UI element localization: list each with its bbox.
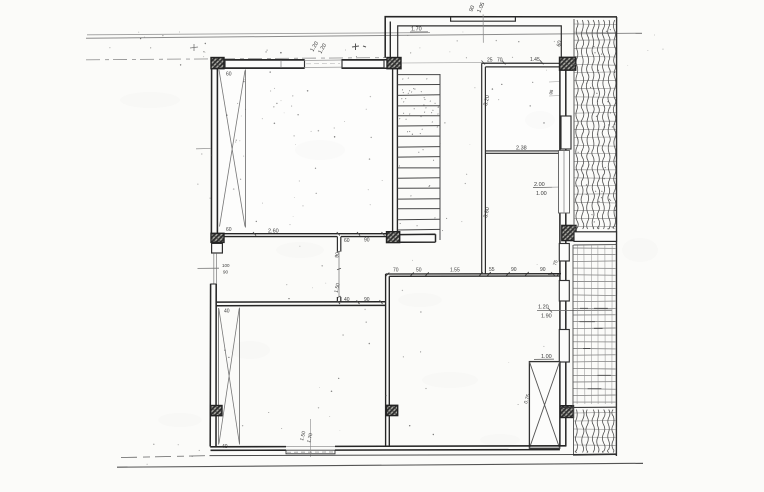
svg-text:25: 25 xyxy=(487,58,493,64)
svg-text:2.38: 2.38 xyxy=(516,146,527,152)
svg-text:1.00: 1.00 xyxy=(541,354,552,360)
svg-text:100: 100 xyxy=(222,263,230,268)
svg-text:70: 70 xyxy=(497,57,503,63)
svg-text:90: 90 xyxy=(540,267,546,273)
svg-text:1.90: 1.90 xyxy=(541,314,552,320)
svg-text:60: 60 xyxy=(344,238,350,244)
svg-text:70: 70 xyxy=(393,268,399,274)
svg-text:1.55: 1.55 xyxy=(450,267,460,273)
svg-text:90: 90 xyxy=(364,297,370,303)
svg-text:60: 60 xyxy=(226,227,232,233)
svg-text:90: 90 xyxy=(223,270,229,275)
svg-text:55: 55 xyxy=(489,267,495,273)
svg-text:40: 40 xyxy=(344,297,350,303)
svg-text:1.00: 1.00 xyxy=(536,191,547,197)
svg-text:90: 90 xyxy=(364,238,370,244)
svg-text:2.60: 2.60 xyxy=(268,229,279,235)
svg-text:40: 40 xyxy=(224,309,230,315)
svg-text:60: 60 xyxy=(226,72,232,78)
svg-text:50: 50 xyxy=(416,268,422,274)
svg-text:1.45: 1.45 xyxy=(530,57,540,63)
svg-text:1.20: 1.20 xyxy=(538,305,549,311)
svg-text:90: 90 xyxy=(511,267,517,273)
